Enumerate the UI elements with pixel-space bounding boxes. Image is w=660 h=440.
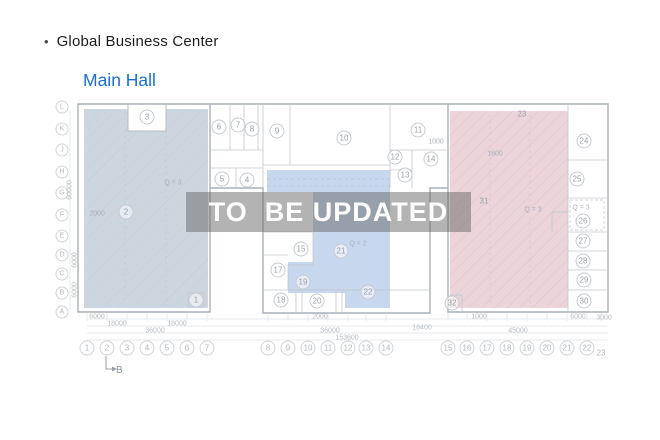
room-number: 32 (445, 296, 460, 311)
grid-row-label: J (56, 144, 69, 157)
room-number: 5 (215, 172, 230, 187)
plan-annotation: 2000 (89, 211, 105, 218)
grid-row-label: H (56, 165, 69, 178)
room-number: 9 (270, 124, 285, 139)
room-number: 26 (576, 214, 591, 229)
grid-col-label: 12 (341, 341, 356, 356)
grid-col-label: 22 (580, 341, 595, 356)
dimension-label: 3000 (596, 315, 612, 322)
grid-col-label: 5 (160, 341, 175, 356)
grid-col-label: 8 (261, 341, 276, 356)
grid-row-label: K (56, 122, 69, 135)
room-number: 19 (296, 275, 311, 290)
dimension-label: 36000 (320, 328, 339, 335)
room-number: 6 (212, 120, 227, 135)
room-number: 29 (577, 273, 592, 288)
grid-col-label: 19 (520, 341, 535, 356)
grid-row-label: F (56, 208, 69, 221)
plan-annotation: 1000 (428, 139, 444, 146)
grid-col-label: 11 (321, 341, 336, 356)
room-number: 27 (576, 234, 591, 249)
dimension-label: 2000 (312, 314, 328, 321)
grid-row-label: E (56, 230, 69, 243)
room-number: 20 (310, 294, 325, 309)
grid-row-label: C (56, 268, 69, 281)
room-number: 4 (240, 173, 255, 188)
room-number: 17 (271, 263, 286, 278)
room-number: 12 (388, 150, 403, 165)
dimension-label: 18000 (167, 321, 186, 328)
grid-col-label: 16 (460, 341, 475, 356)
grid-col-label: 3 (120, 341, 135, 356)
grid-col-label: 6 (180, 341, 195, 356)
plan-annotation: Q = 3 (524, 207, 541, 214)
plan-annotation: Q = 3 (572, 205, 589, 212)
grid-col-label: 9 (281, 341, 296, 356)
dimension-label: 6000 (72, 282, 79, 298)
dimension-label: 36000 (145, 328, 164, 335)
plan-annotation: Q = 2 (349, 241, 366, 248)
plan-annotation: Q = 3 (164, 180, 181, 187)
room-number: 18 (274, 293, 289, 308)
dimension-label: 18400 (412, 325, 431, 332)
grid-col-label: 4 (140, 341, 155, 356)
grid-row-label: B (56, 287, 69, 300)
dimension-label: 6000 (570, 314, 586, 321)
room-number: 31 (478, 195, 491, 208)
grid-row-label: A (56, 305, 69, 318)
room-number: 1 (189, 293, 204, 308)
grid-col-label: 17 (480, 341, 495, 356)
dimension-label: 60000 (67, 180, 74, 199)
grid-col-label: 1 (80, 341, 95, 356)
grid-row-label: L (56, 101, 69, 114)
grid-col-label: 10 (301, 341, 316, 356)
grid-row-label: D (56, 249, 69, 262)
room-number: 15 (294, 242, 309, 257)
dimension-label: 6000 (89, 314, 105, 321)
dimension-label: 6000 (72, 252, 79, 268)
grid-col-label: 21 (560, 341, 575, 356)
section-marker-b: B (116, 365, 123, 376)
grid-col-label: 14 (379, 341, 394, 356)
room-number: 21 (334, 244, 349, 259)
room-number: 11 (411, 123, 426, 138)
dimension-label: 45000 (508, 328, 527, 335)
room-number: 22 (361, 285, 376, 300)
room-number: 30 (577, 294, 592, 309)
room-number: 23 (516, 108, 529, 121)
dimension-label: 18000 (107, 321, 126, 328)
grid-col-label: 2 (100, 341, 115, 356)
grid-col-label: 13 (359, 341, 374, 356)
room-number: 28 (576, 254, 591, 269)
room-number: 2 (119, 205, 134, 220)
room-number: 8 (245, 122, 260, 137)
room-number: 13 (398, 168, 413, 183)
slide-canvas: • Global Business Center Main Hall (0, 0, 660, 440)
room-number: 10 (337, 131, 352, 146)
grid-col-label: 23 (597, 349, 606, 358)
grid-col-label: 7 (200, 341, 215, 356)
grid-col-label: 18 (500, 341, 515, 356)
dimension-label: 153600 (335, 335, 358, 342)
grid-col-label: 20 (540, 341, 555, 356)
room-number: 25 (570, 172, 585, 187)
room-number: 14 (424, 152, 439, 167)
room-number: 7 (231, 118, 246, 133)
plan-annotation: 1800 (487, 151, 503, 158)
floor-plan: LKJHGFEDCBA12345678910111213141516171819… (0, 0, 660, 440)
room-number: 3 (140, 110, 155, 125)
room-number: 24 (577, 134, 592, 149)
dimension-label: 1000 (471, 314, 487, 321)
grid-col-label: 15 (441, 341, 456, 356)
watermark-banner: TO BE UPDATED (186, 192, 471, 232)
